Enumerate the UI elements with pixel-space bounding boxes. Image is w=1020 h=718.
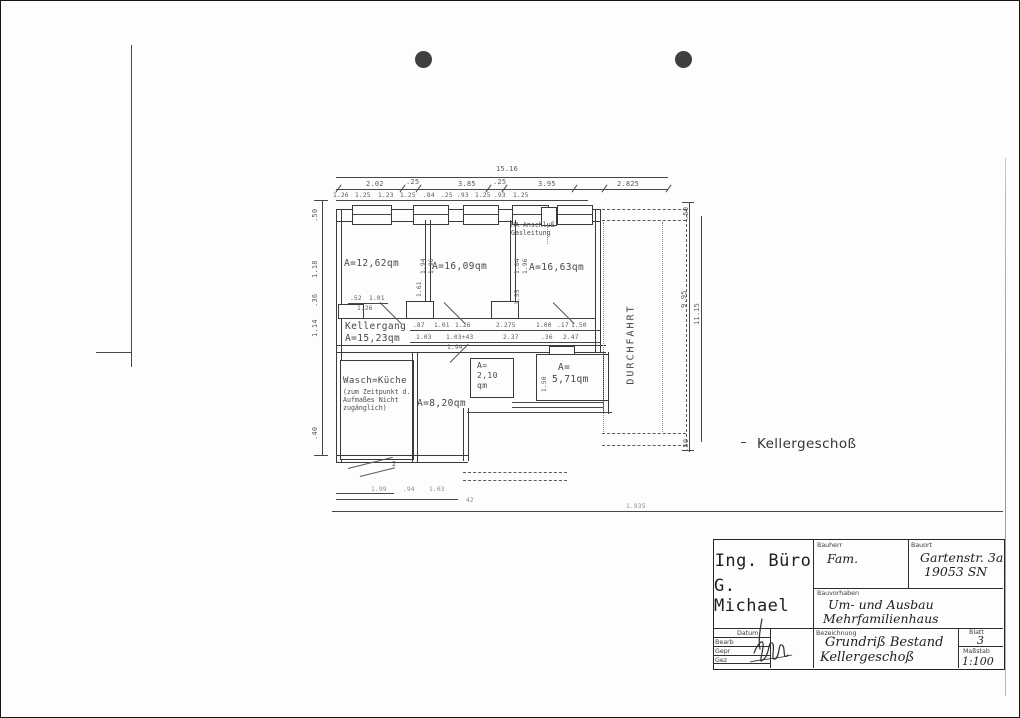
dim-label: .93 <box>494 192 506 199</box>
kellergang-label: Kellergang <box>345 321 406 332</box>
firm-line-1: Ing. Büro <box>715 551 812 571</box>
fold-line-tick <box>96 352 132 353</box>
room1-area-label: A=12,62qm <box>344 258 399 269</box>
dashed-wall <box>602 220 686 221</box>
scanned-floor-plan-page: 15.16 2.02 .25 3.85 .25 3.95 2.825 1.26 … <box>0 0 1020 718</box>
dim-label: 1.96 <box>428 258 435 274</box>
bezeichnung-value-1: Grundriß Bestand <box>825 635 943 650</box>
caption-tick <box>741 442 746 443</box>
dim-label: 1.935 <box>626 503 646 510</box>
duct-line <box>512 402 604 403</box>
door-swing <box>444 302 466 324</box>
dim-label: 1.03 <box>416 334 432 341</box>
dim-label: .36 <box>541 334 553 341</box>
dim-tick <box>314 200 328 201</box>
title-block-divider <box>908 539 909 588</box>
dim-label: 1.01 <box>434 322 450 329</box>
dim-label: .93 <box>457 192 469 199</box>
dim-label: 1.00 <box>536 322 552 329</box>
dim-tick <box>682 202 694 203</box>
window <box>413 205 449 225</box>
dim-label: 1.94 <box>420 258 427 274</box>
dim-label: .25 <box>441 192 453 199</box>
bauvorhaben-value-1: Um- und Ausbau <box>828 597 934 612</box>
massstab-label: Maßstab <box>963 648 990 655</box>
title-block-divider <box>813 539 814 668</box>
ha-note-1: HA-Anschluß <box>511 221 555 229</box>
ha-note-2: Gasleitung <box>511 229 551 237</box>
wall-pier <box>406 301 434 319</box>
bauherr-label: Bauherr <box>817 542 842 549</box>
dim-label: 1.61 <box>416 281 423 297</box>
bauort-value-2: 19053 SN <box>924 564 987 579</box>
room4-area-label: A=8,20qm <box>417 398 466 409</box>
dim-label: 1.26 <box>455 322 471 329</box>
dashed-wall <box>686 209 687 447</box>
bauherr-value: Fam. <box>827 551 858 566</box>
room5-area-label: A= <box>477 361 487 370</box>
dim-label: 1.25 <box>513 192 529 199</box>
bauvorhaben-label: Bauvorhaben <box>817 590 859 597</box>
dim-label: 1.18 <box>311 260 319 278</box>
corridor-top-line <box>340 318 595 319</box>
dim-label: 42 <box>466 497 474 504</box>
dashed-line <box>463 480 567 481</box>
dim-label: 3.85 <box>458 180 476 188</box>
dotted-edge <box>603 222 604 432</box>
massstab-value: 1:100 <box>962 655 994 668</box>
dim-label: 1.99 <box>371 486 387 493</box>
dim-label: .50 <box>311 209 319 222</box>
dim-label: 1.14 <box>311 319 319 337</box>
wasch-note-2: Aufmaßes Nicht <box>343 396 399 404</box>
room5-area-unit: qm <box>477 381 487 390</box>
room6-area-label: A= <box>558 362 570 373</box>
dim-label: .52 <box>350 295 362 302</box>
dim-line <box>689 202 690 452</box>
dim-label: .94 <box>403 486 415 493</box>
window <box>557 205 593 225</box>
dim-label: .36 <box>311 294 319 307</box>
room6-area-value: 5,71qm <box>552 374 589 385</box>
dim-line <box>322 200 323 456</box>
dim-label: 2.275 <box>496 322 516 329</box>
wasch-note-1: (zum Zeitpunkt d. <box>343 388 411 396</box>
dim-label: 1.03 <box>429 486 445 493</box>
durchfahrt-label: DURCHFAHRT <box>626 290 637 400</box>
dim-tick <box>666 185 672 193</box>
window <box>463 205 499 225</box>
window <box>352 205 392 225</box>
wasch-label: Wasch=Küche <box>343 376 407 386</box>
dim-line <box>348 303 388 304</box>
firm-line-2: G. Michael <box>714 576 812 616</box>
ramp-label: 2 <box>392 460 396 468</box>
room2-area-label: A=16,09qm <box>432 261 487 272</box>
title-block-divider <box>813 588 1003 589</box>
dim-label: 1.50 <box>541 376 548 392</box>
dim-label: 1.26 <box>357 305 373 312</box>
dim-line <box>410 330 600 331</box>
dim-label: 1.96 <box>522 258 529 274</box>
bauvorhaben-value-2: Mehrfamilienhaus <box>823 611 939 626</box>
dim-label: 1.04 <box>514 258 521 274</box>
punch-hole-left <box>415 51 432 68</box>
dim-line <box>701 216 702 442</box>
fold-line-vertical <box>131 45 132 367</box>
dim-label: 1.25 <box>400 192 416 199</box>
signature <box>748 615 794 667</box>
firm-name: Ing. Büro G. Michael <box>714 540 812 627</box>
dim-total-width: 15.16 <box>496 165 518 173</box>
scan-crease <box>1005 158 1006 696</box>
dim-label: 1.03+43 <box>446 334 473 341</box>
dashed-line <box>463 472 567 473</box>
dim-label: 2.825 <box>617 180 639 188</box>
gez-label: Gez <box>715 657 727 664</box>
title-block-divider <box>958 628 959 668</box>
dotted-edge <box>662 222 663 432</box>
punch-hole-right <box>675 51 692 68</box>
dim-label: .25 <box>493 178 506 186</box>
room5-area-value: 2,10 <box>477 371 498 380</box>
dashed-wall <box>602 433 686 434</box>
dim-label: 1.25 <box>355 192 371 199</box>
wall-line <box>467 412 612 413</box>
duct-line <box>512 407 604 408</box>
dim-label: .84 <box>423 192 435 199</box>
dim-label: .40 <box>311 427 319 440</box>
door-swing <box>553 302 575 324</box>
dim-line <box>336 200 588 201</box>
dim-label: 2.37 <box>503 334 519 341</box>
blatt-value: 3 <box>977 634 984 647</box>
wasch-note-3: zugänglich) <box>343 404 387 412</box>
ramp-line <box>360 467 395 477</box>
bearb-label: Bearb <box>715 639 734 646</box>
bezeichnung-value-2: Kellergeschoß <box>820 650 914 665</box>
dim-line <box>336 499 458 500</box>
dim-label: 1.25 <box>475 192 491 199</box>
gepr-label: Gepr <box>715 648 730 655</box>
dim-tick <box>314 455 328 456</box>
dim-label: 1.01 <box>369 295 385 302</box>
wall-bottom <box>336 455 468 463</box>
kellergang-area-label: A=15,23qm <box>345 333 400 344</box>
dim-label: 11.15 <box>693 303 701 325</box>
dim-label: .87 <box>413 322 425 329</box>
dim-label: 1.50 <box>571 322 587 329</box>
dim-label: 1.26 <box>333 192 349 199</box>
bauort-label: Bauort <box>911 542 932 549</box>
dim-label: 1.55 <box>514 289 521 305</box>
dashed-wall <box>602 445 686 446</box>
dim-label: .25 <box>406 178 419 186</box>
dim-line <box>336 493 394 494</box>
dim-label: 1.23 <box>378 192 394 199</box>
bauort-value-1: Gartenstr. 3a <box>920 550 1003 565</box>
dim-line <box>410 342 600 343</box>
room3-area-label: A=16,63qm <box>529 262 584 273</box>
wall <box>463 408 469 461</box>
dim-label: 2.02 <box>366 180 384 188</box>
floor-caption: Kellergeschoß <box>757 436 856 452</box>
dim-label: 3.95 <box>538 180 556 188</box>
dim-line <box>332 511 1003 512</box>
dim-label: 1.94 <box>447 344 463 351</box>
dashed-wall <box>602 209 686 210</box>
dim-label: .17 <box>557 322 569 329</box>
dim-label: 2.47 <box>563 334 579 341</box>
